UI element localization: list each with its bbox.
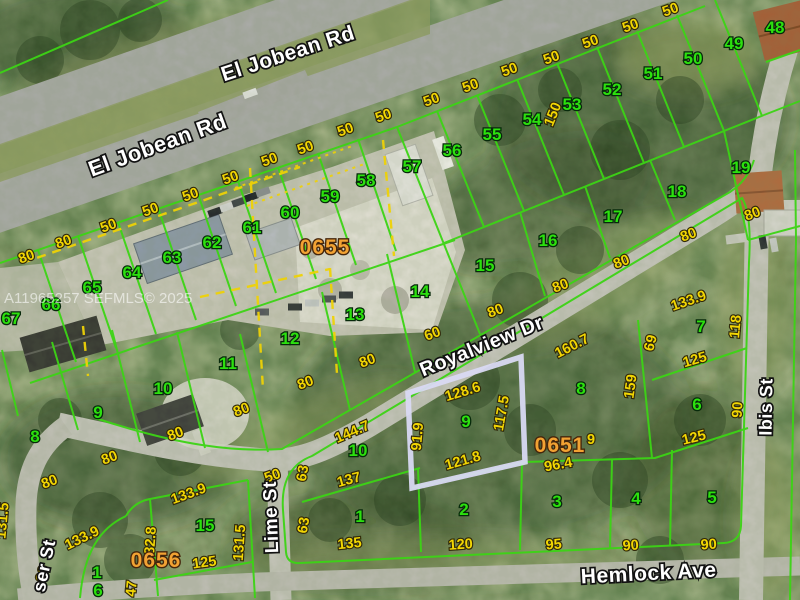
lot-number-label: 58: [357, 171, 376, 190]
lot-number-label: 1: [92, 563, 101, 582]
lot-number-label: 62: [203, 233, 222, 252]
lot-number-label: 3: [552, 492, 561, 511]
street-name-label: Lime St: [260, 481, 284, 554]
lot-number-label: 67: [2, 309, 21, 328]
dimension-label: 135: [337, 535, 363, 553]
lot-number-label: 14: [411, 282, 430, 301]
plat-number-label: 0651: [535, 434, 586, 457]
lot-number-label: 63: [163, 248, 182, 267]
dimension-label: 9: [587, 432, 595, 448]
dimension-label: 118: [727, 314, 745, 339]
lot-number-label: 49: [725, 34, 744, 53]
dimension-label: 91.9: [409, 422, 427, 452]
lot-number-label: 48: [766, 18, 785, 37]
dimension-label: 120: [448, 536, 473, 554]
lot-number-label: 8: [576, 379, 585, 398]
lot-number-label: 64: [123, 263, 142, 282]
lot-number-label: 15: [476, 256, 495, 275]
lot-number-label: 18: [668, 182, 687, 201]
lot-number-label: 19: [732, 158, 751, 177]
dimension-label: 125: [191, 553, 217, 572]
map-canvas: 5050505050505050505050505050508080150808…: [0, 0, 800, 600]
aerial-plat-map[interactable]: 5050505050505050505050505050508080150808…: [0, 0, 800, 600]
lot-number-label: 10: [349, 441, 368, 460]
lot-number-label: 9: [461, 412, 470, 431]
lot-number-label: 15: [196, 516, 215, 535]
dimension-label: 63: [294, 464, 313, 483]
lot-number-label: 2: [459, 500, 468, 519]
lot-number-label: 6: [692, 395, 701, 414]
lot-number-label: 4: [631, 489, 641, 508]
lot-number-label: 1: [355, 507, 364, 526]
lot-number-label: 59: [321, 187, 340, 206]
lot-number-label: 60: [281, 203, 300, 222]
lot-number-label: 10: [154, 379, 173, 398]
lot-number-label: 50: [684, 49, 703, 68]
dimension-label: 90: [622, 537, 639, 554]
lot-number-label: 53: [563, 95, 582, 114]
lot-number-label: 57: [403, 157, 422, 176]
lot-number-label: 61: [243, 218, 262, 237]
dimension-label: 90: [700, 536, 717, 553]
lot-number-label: 5: [707, 488, 716, 507]
dimension-label: 47: [123, 580, 140, 597]
dimension-label: 131.5: [231, 524, 249, 561]
lot-number-label: 17: [604, 207, 623, 226]
lot-number-label: 56: [443, 141, 462, 160]
lot-number-label: 55: [483, 125, 502, 144]
lot-number-label: 54: [523, 110, 542, 129]
plat-number-label: 0655: [300, 236, 351, 259]
plat-number-label: 0656: [131, 549, 182, 572]
lot-number-label: 7: [696, 317, 705, 336]
dimension-label: 90: [730, 401, 747, 418]
lot-number-label: 8: [30, 427, 39, 446]
lot-number-label: 11: [219, 354, 237, 373]
lot-number-label: 16: [539, 231, 558, 250]
lot-number-label: 13: [346, 305, 365, 324]
mls-watermark: A11965257 SEFMLS© 2025: [4, 290, 192, 307]
lot-number-label: 52: [603, 80, 622, 99]
dimension-label: 159: [621, 373, 640, 399]
dimension-label: 95: [545, 536, 562, 553]
street-name-label: Ibis St: [756, 378, 777, 436]
lot-number-label: 51: [644, 64, 663, 83]
lot-number-label: 9: [93, 403, 102, 422]
dimension-label: 63: [295, 516, 314, 535]
lot-number-label: 6: [93, 581, 102, 600]
lot-number-label: 12: [281, 329, 300, 348]
